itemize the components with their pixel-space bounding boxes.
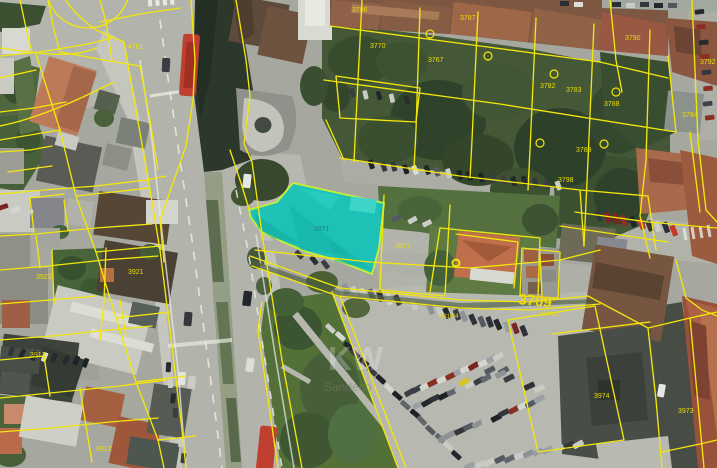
svg-text:3912: 3912 xyxy=(96,446,112,453)
svg-text:3787: 3787 xyxy=(460,15,476,22)
svg-text:3921: 3921 xyxy=(128,269,144,276)
svg-text:3789: 3789 xyxy=(576,147,592,154)
svg-text:3810/1: 3810/1 xyxy=(540,312,559,318)
svg-text:3788: 3788 xyxy=(604,101,620,108)
svg-text:Sandeco: Sandeco xyxy=(324,380,372,394)
svg-text:3786: 3786 xyxy=(352,7,368,14)
svg-text:3810/4: 3810/4 xyxy=(440,314,459,320)
svg-text:3770: 3770 xyxy=(370,43,386,50)
svg-text:3792: 3792 xyxy=(700,59,716,66)
svg-text:3783: 3783 xyxy=(566,87,582,94)
svg-text:3790: 3790 xyxy=(625,35,641,42)
svg-text:3767: 3767 xyxy=(428,57,444,64)
svg-text:3923: 3923 xyxy=(36,274,52,281)
svg-text:3782: 3782 xyxy=(540,83,556,90)
svg-text:3709: 3709 xyxy=(518,291,553,311)
svg-text:3971: 3971 xyxy=(314,226,330,233)
svg-text:3977: 3977 xyxy=(395,243,411,250)
svg-text:3798: 3798 xyxy=(558,177,574,184)
svg-text:3974: 3974 xyxy=(594,393,610,400)
svg-text:KW: KW xyxy=(328,340,384,377)
svg-text:4701: 4701 xyxy=(128,44,144,51)
svg-text:3973: 3973 xyxy=(678,408,694,415)
svg-text:3913: 3913 xyxy=(30,352,46,359)
svg-text:3794: 3794 xyxy=(682,112,698,119)
